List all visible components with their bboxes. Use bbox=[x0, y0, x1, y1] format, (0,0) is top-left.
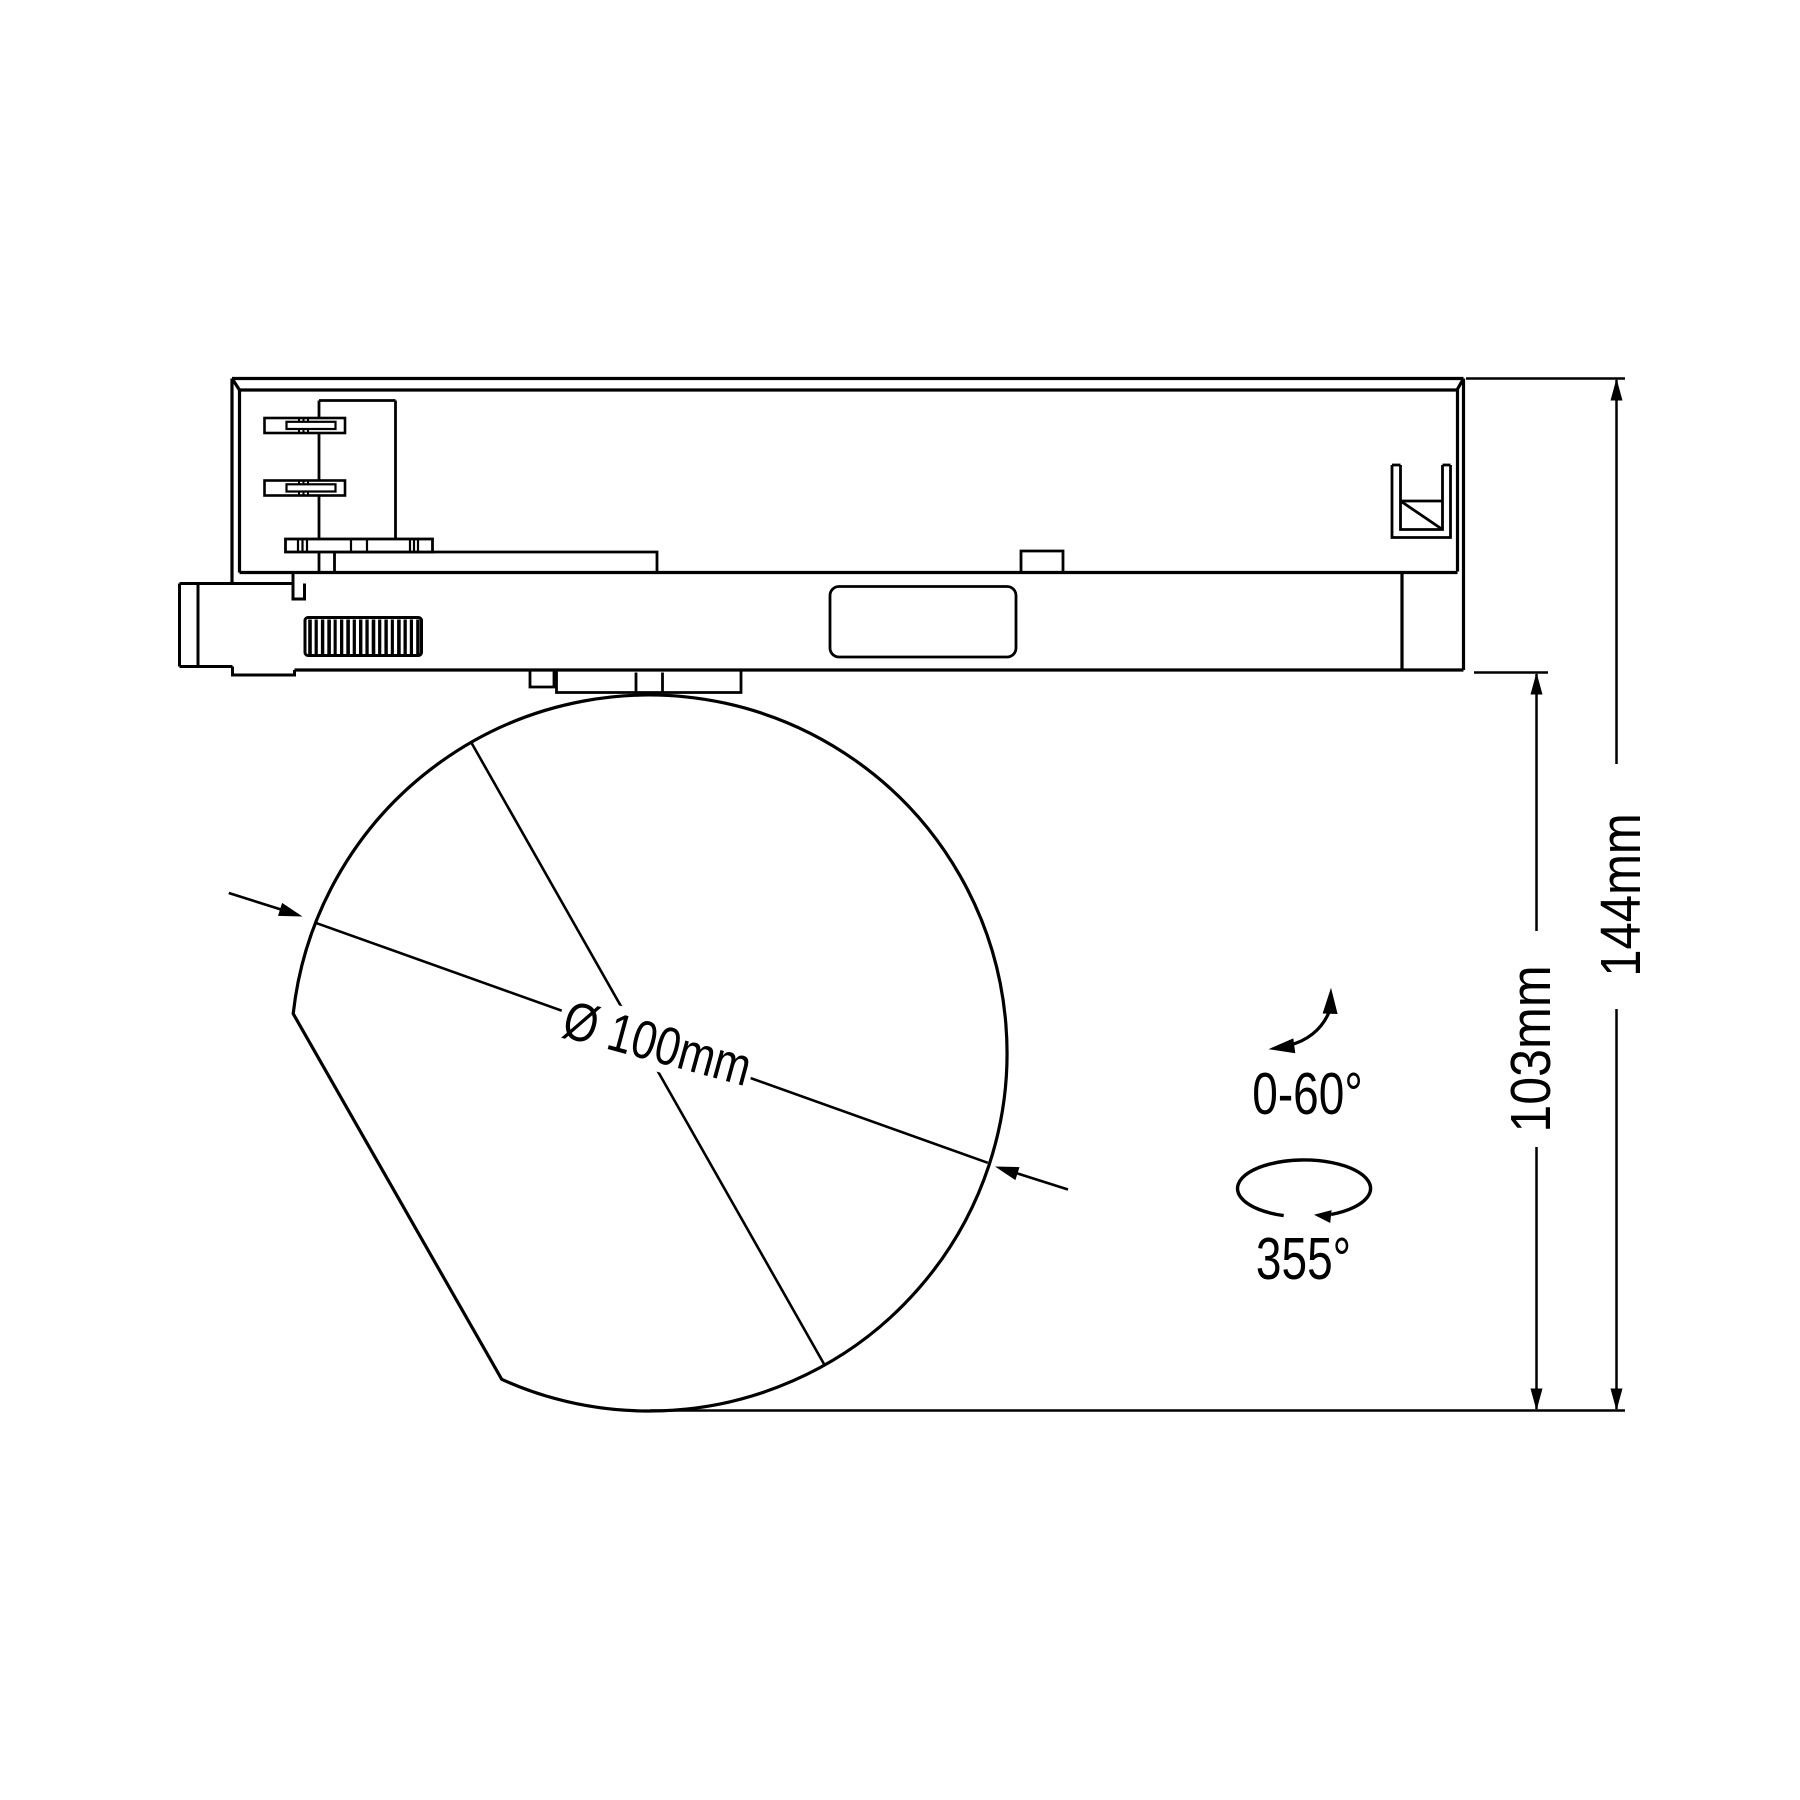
svg-text:355°: 355° bbox=[1256, 1227, 1351, 1293]
svg-text:144mm: 144mm bbox=[1590, 813, 1653, 976]
svg-text:103mm: 103mm bbox=[1499, 965, 1563, 1132]
svg-text:0-60°: 0-60° bbox=[1252, 1062, 1362, 1128]
